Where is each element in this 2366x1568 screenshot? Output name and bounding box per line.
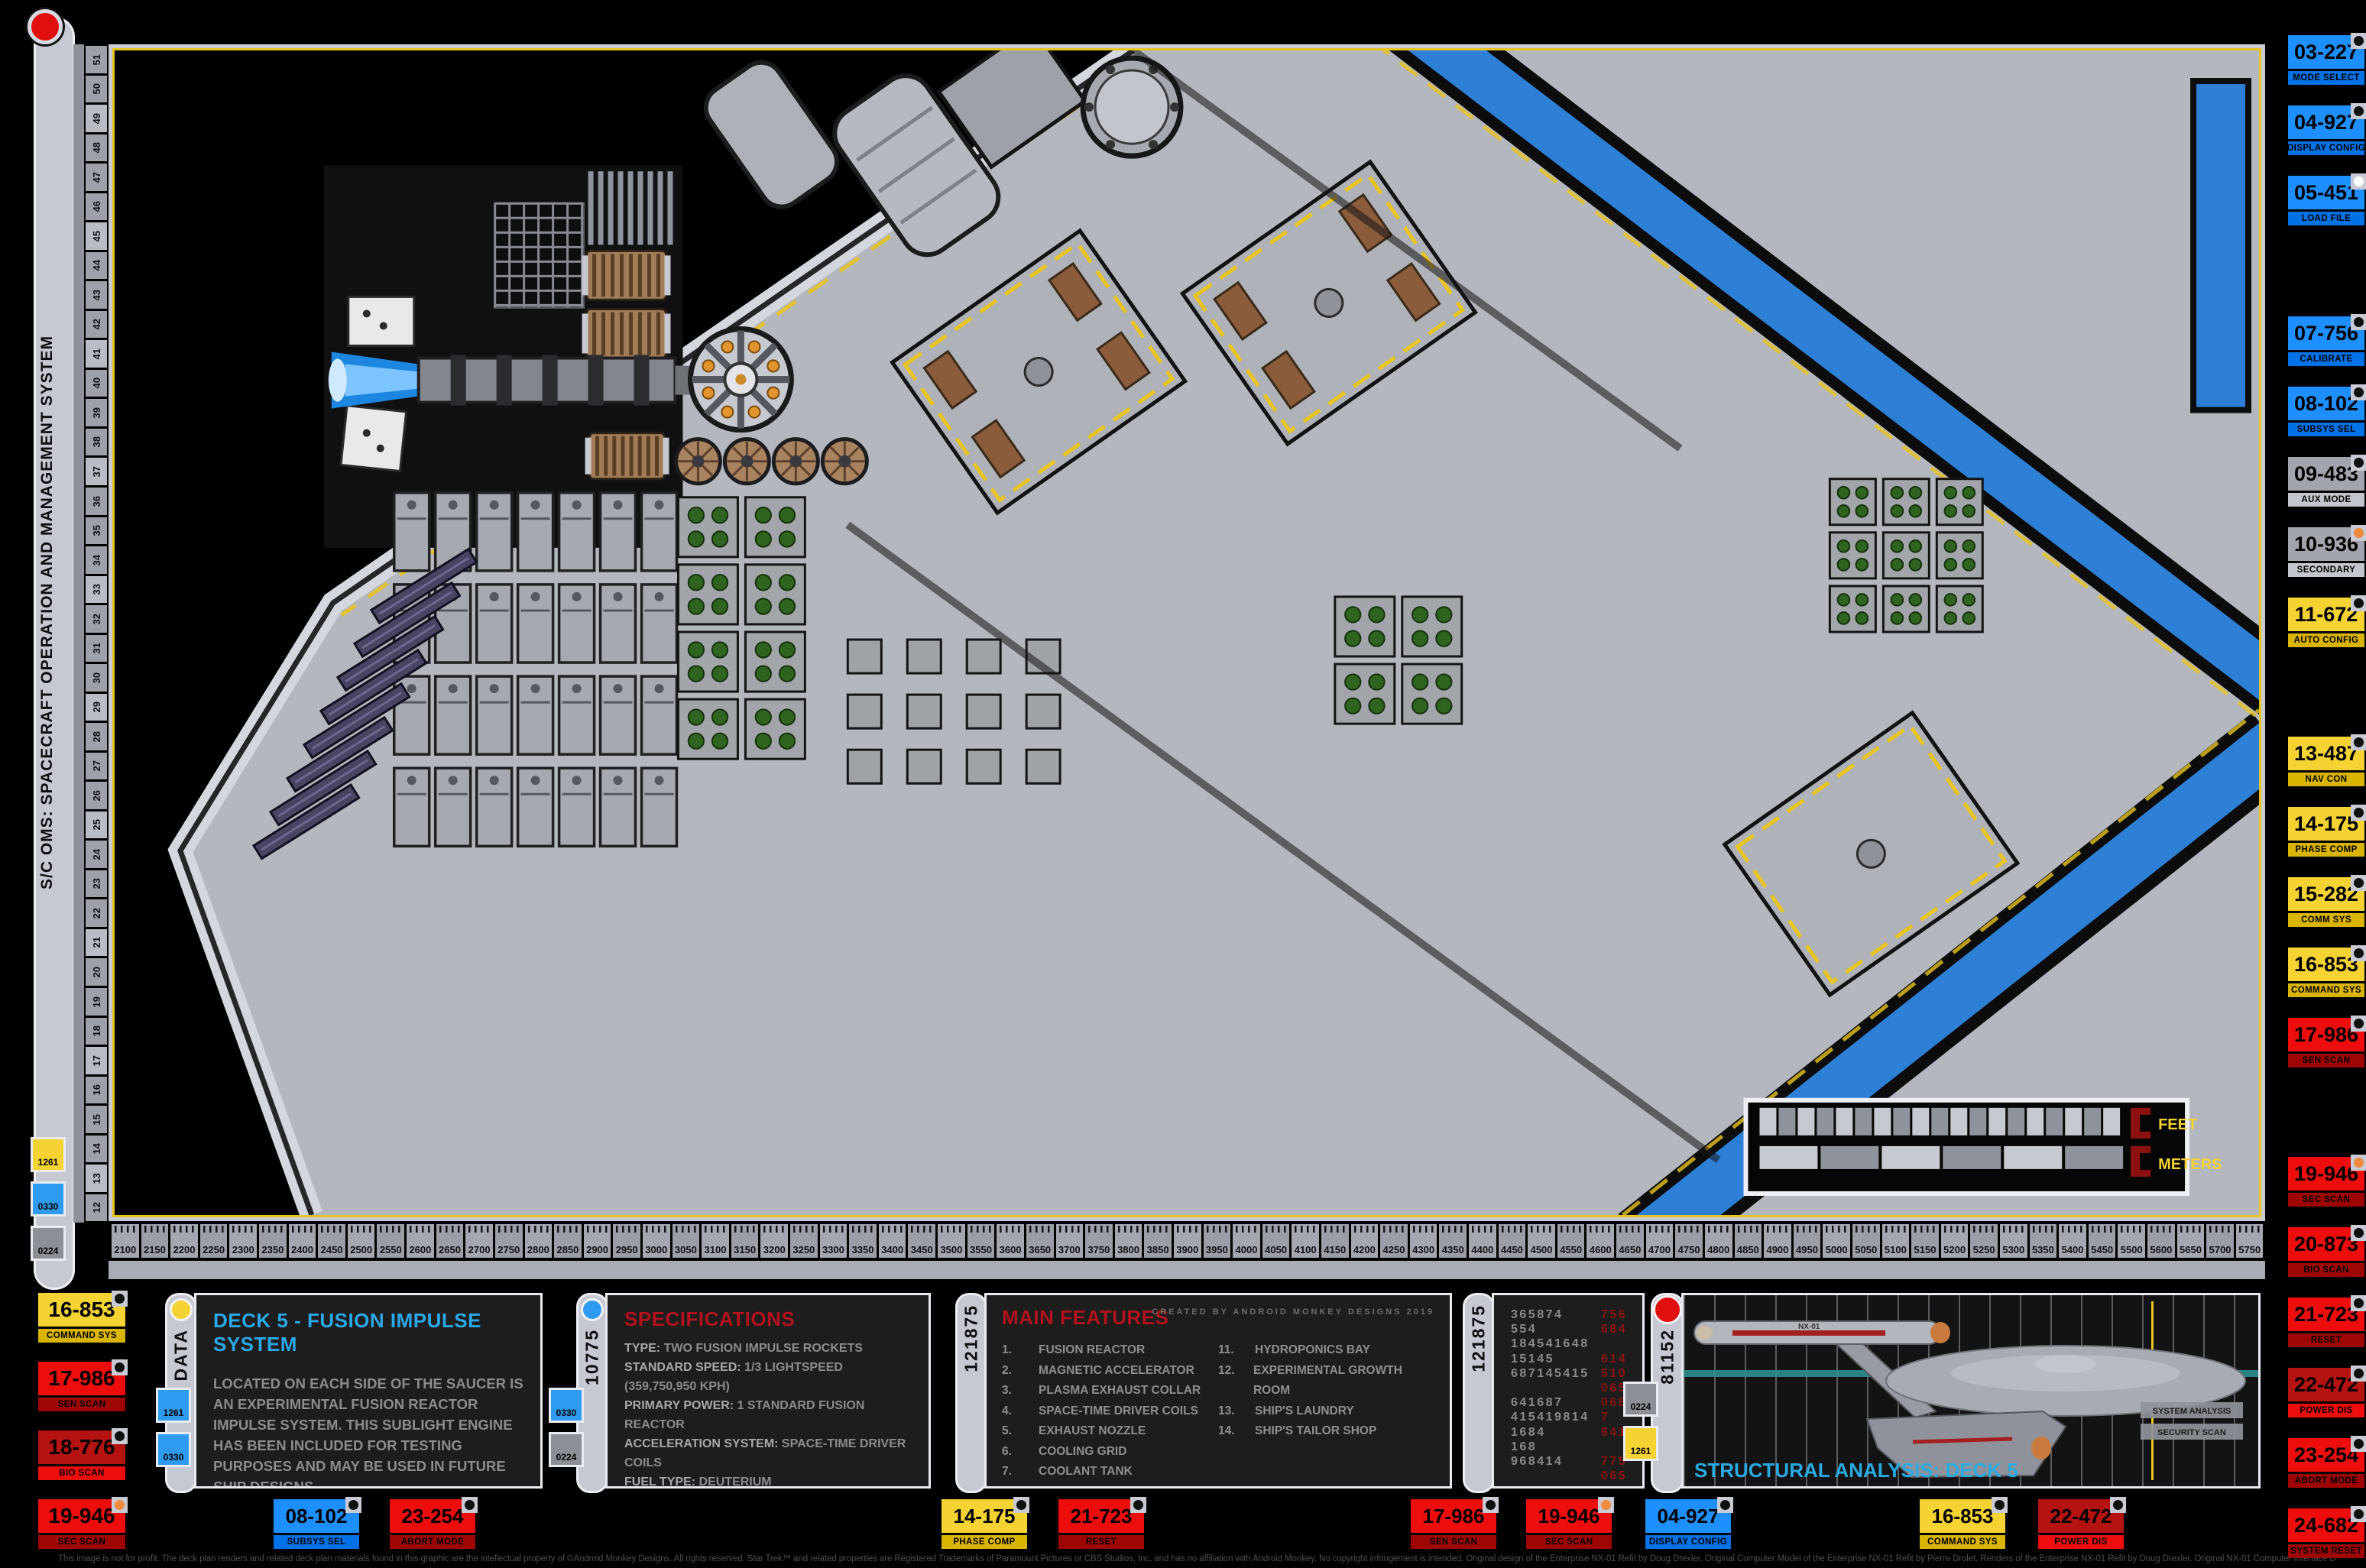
main-features-panel: CREATED BY ANDROID MONKEY DESIGNS 2019 M…	[984, 1293, 1452, 1489]
selector-chip-1261[interactable]: 1261	[156, 1388, 191, 1423]
button-code: 11-672	[2295, 603, 2358, 627]
ruler-mark-24: 24	[86, 841, 107, 868]
feature-label: FUSION REACTOR	[1039, 1340, 1145, 1361]
indicator-dot	[112, 1428, 128, 1444]
command-button-19-946[interactable]: 19-946SEC SCAN	[38, 1499, 125, 1549]
ruler-mark-label: 45	[91, 231, 102, 241]
selector-chip-0330[interactable]: 0330	[31, 1181, 66, 1216]
indicator-dot	[462, 1497, 478, 1513]
ruler-mark-21: 21	[86, 929, 107, 957]
ruler-mark-label: 22	[91, 908, 102, 918]
button-code-box: 09-483	[2288, 457, 2364, 491]
ruler-mark-label: 4600	[1587, 1244, 1614, 1255]
spec-row: TYPE: TWO FUSION IMPULSE ROCKETS	[624, 1339, 912, 1358]
command-button-08-102[interactable]: 08-102SUBSYS SEL	[274, 1499, 359, 1549]
button-function-label: LOAD FILE	[2288, 212, 2364, 225]
ruler-mark-label: 3400	[879, 1244, 906, 1255]
telemetry-value-red: 510	[1601, 1367, 1627, 1380]
ruler-mark-3300: 3300	[820, 1224, 848, 1258]
telemetry-value-red: 7	[1601, 1411, 1609, 1424]
ruler-mark-label: 3350	[849, 1244, 877, 1255]
button-code-box: 19-946	[38, 1499, 125, 1533]
button-code: 17-986	[48, 1366, 115, 1391]
ruler-mark-4900: 4900	[1764, 1224, 1791, 1258]
ruler-mark-15: 15	[86, 1106, 107, 1133]
button-code-box: 19-946	[2288, 1157, 2364, 1191]
command-button-10-936[interactable]: 10-936SECONDARY	[2288, 527, 2364, 577]
telemetry-value-gray: 687145415	[1511, 1366, 1601, 1381]
telemetry-value-gray: 15145	[1511, 1352, 1601, 1366]
ruler-mark-label: 2900	[584, 1244, 611, 1255]
ruler-mark-3350: 3350	[849, 1224, 877, 1258]
telemetry-value-gray: 168	[1511, 1440, 1601, 1454]
ruler-mark-label: 3150	[731, 1244, 759, 1255]
selector-chip-0330[interactable]: 0330	[156, 1432, 191, 1467]
structural-analysis-panel: NX-01 SYSTEM ANALYSIS SECURITY SCAN STRU…	[1681, 1293, 2261, 1489]
feature-item: 6.COOLING GRID	[1002, 1442, 1218, 1463]
ruler-mark-label: 2500	[348, 1244, 375, 1255]
analysis-tag-buttons: SYSTEM ANALYSIS SECURITY SCAN	[2141, 1402, 2243, 1440]
indicator-dot	[2351, 103, 2366, 119]
ruler-mark-13: 13	[86, 1165, 107, 1192]
indicator-dot	[2351, 595, 2366, 611]
indicator-dot	[2351, 734, 2366, 750]
ruler-mark-3750: 3750	[1085, 1224, 1113, 1258]
ruler-mark-label: 4500	[1528, 1244, 1555, 1255]
ruler-mark-label: 5750	[2236, 1244, 2264, 1255]
ruler-mark-label: 3000	[643, 1244, 670, 1255]
button-code-box: 11-672	[2288, 598, 2364, 631]
analysis-title: STRUCTURAL ANALYSIS: DECK 5	[1694, 1459, 2018, 1482]
ruler-mark-3400: 3400	[879, 1224, 906, 1258]
indicator-dot	[112, 1359, 128, 1375]
ruler-mark-label: 3300	[820, 1244, 848, 1255]
ruler-mark-32: 32	[86, 605, 107, 633]
command-button-23-254[interactable]: 23-254ABORT MODE	[390, 1499, 475, 1549]
feature-label: PLASMA EXHAUST COLLAR	[1039, 1381, 1201, 1401]
ruler-mark-label: 5150	[1911, 1244, 1939, 1255]
numbers-panel-tab: 121875	[1463, 1293, 1495, 1493]
ruler-mark-label: 15	[91, 1114, 102, 1125]
button-function-label: RESET	[1058, 1535, 1144, 1549]
ruler-mark-label: 3650	[1026, 1244, 1054, 1255]
ruler-mark-label: 33	[91, 584, 102, 594]
telemetry-row: 065	[1511, 1469, 1642, 1483]
feature-label: MAGNETIC ACCELERATOR	[1039, 1361, 1194, 1382]
ruler-mark-label: 4150	[1321, 1244, 1349, 1255]
button-function-label: COMMAND SYS	[38, 1329, 125, 1343]
button-code: 19-946	[2294, 1162, 2358, 1186]
feature-number: 5.	[1002, 1421, 1039, 1442]
ruler-mark-4600: 4600	[1587, 1224, 1614, 1258]
indicator-dot	[1992, 1497, 2008, 1513]
button-function-label: SUBSYS SEL	[274, 1535, 359, 1549]
ruler-mark-4100: 4100	[1292, 1224, 1319, 1258]
telemetry-row: 687145415510	[1511, 1366, 1642, 1381]
ruler-mark-29: 29	[86, 694, 107, 721]
ruler-mark-5650: 5650	[2177, 1224, 2205, 1258]
ruler-mark-14: 14	[86, 1136, 107, 1163]
command-button-19-946[interactable]: 19-946SEC SCAN	[2288, 1157, 2364, 1207]
ruler-mark-39: 39	[86, 399, 107, 426]
feature-number: 12.	[1218, 1361, 1253, 1401]
ruler-mark-23: 23	[86, 870, 107, 898]
command-button-19-946[interactable]: 19-946SEC SCAN	[1526, 1499, 1612, 1549]
indicator-dot	[1130, 1497, 1146, 1513]
button-function-label: COMMAND SYS	[1920, 1535, 2005, 1549]
ruler-mark-16: 16	[86, 1077, 107, 1104]
command-button-07-756[interactable]: 07-756CALIBRATE	[2288, 316, 2364, 366]
ruler-mark-4500: 4500	[1528, 1224, 1555, 1258]
button-function-label: ABORT MODE	[2288, 1474, 2364, 1488]
selector-chip-0330[interactable]: 0330	[549, 1388, 584, 1423]
ruler-mark-4150: 4150	[1321, 1224, 1349, 1258]
ruler-mark-label: 2800	[525, 1244, 553, 1255]
ruler-mark-20: 20	[86, 958, 107, 986]
command-button-17-986[interactable]: 17-986SEN SCAN	[2288, 1018, 2364, 1067]
ruler-mark-label: 5500	[2118, 1244, 2145, 1255]
telemetry-value-gray: 641687	[1511, 1395, 1601, 1410]
button-code-box: 17-986	[38, 1362, 125, 1395]
button-function-label: SEN SCAN	[1411, 1535, 1496, 1549]
button-code: 16-853	[2294, 953, 2358, 977]
button-code-box: 23-254	[390, 1499, 475, 1533]
ruler-mark-label: 5350	[2030, 1244, 2057, 1255]
button-code-box: 20-873	[2288, 1227, 2364, 1261]
analysis-panel-tab-label: 81152	[1658, 1329, 1678, 1385]
ruler-mark-label: 5700	[2206, 1244, 2234, 1255]
ruler-mark-47: 47	[86, 164, 107, 191]
button-code: 09-483	[2294, 462, 2358, 486]
ruler-mark-label: 4400	[1469, 1244, 1496, 1255]
vertical-ruler: 5150494847464544434241403938373635343332…	[86, 46, 107, 1221]
ruler-mark-label: 41	[91, 348, 102, 359]
oms-screen: S/C OMS: SPACECRAFT OPERATION AND MANAGE…	[0, 0, 2366, 1568]
telemetry-row: 365874756	[1511, 1307, 1642, 1322]
ruler-mark-label: 2100	[112, 1244, 139, 1255]
command-button-11-672[interactable]: 11-672AUTO CONFIG	[2288, 598, 2364, 647]
ruler-mark-label: 4050	[1262, 1244, 1290, 1255]
selector-chip-0224[interactable]: 0224	[1623, 1382, 1658, 1417]
button-code-box: 16-853	[1920, 1499, 2005, 1533]
command-button-05-451[interactable]: 05-451LOAD FILE	[2288, 176, 2364, 225]
security-scan-label: SECURITY SCAN	[2157, 1428, 2226, 1437]
spec-row: ACCELERATION SYSTEM: SPACE-TIME DRIVER C…	[624, 1434, 912, 1472]
ruler-mark-5300: 5300	[2000, 1224, 2027, 1258]
ruler-mark-2800: 2800	[525, 1224, 553, 1258]
ruler-mark-5700: 5700	[2206, 1224, 2234, 1258]
ruler-mark-3200: 3200	[760, 1224, 788, 1258]
button-code-box: 15-282	[2288, 877, 2364, 911]
button-code-box: 24-682	[2288, 1508, 2364, 1542]
command-button-20-873[interactable]: 20-873BIO SCAN	[2288, 1227, 2364, 1277]
ruler-mark-3150: 3150	[731, 1224, 759, 1258]
command-button-24-682[interactable]: 24-682SYSTEM RESET	[2288, 1508, 2364, 1558]
credit-text: CREATED BY ANDROID MONKEY DESIGNS 2019	[1152, 1307, 1434, 1317]
ruler-mark-2650: 2650	[436, 1224, 464, 1258]
ruler-mark-42: 42	[86, 311, 107, 339]
command-button-09-483[interactable]: 09-483AUX MODE	[2288, 457, 2364, 507]
button-function-label: SECONDARY	[2288, 563, 2364, 577]
ship-hull: NX-01	[1694, 1321, 2245, 1477]
button-code-box: 14-175	[942, 1499, 1027, 1533]
command-button-08-102[interactable]: 08-102SUBSYS SEL	[2288, 387, 2364, 436]
ruler-mark-label: 46	[91, 201, 102, 212]
button-function-label: COMMAND SYS	[2288, 983, 2364, 997]
feature-label: EXHAUST NOZZLE	[1039, 1421, 1146, 1442]
button-code: 24-682	[2294, 1514, 2358, 1537]
button-function-label: NAV CON	[2288, 773, 2364, 786]
ruler-mark-label: 29	[91, 701, 102, 712]
selector-chip-1261[interactable]: 1261	[1623, 1426, 1658, 1461]
command-button-18-776[interactable]: 18-776BIO SCAN	[38, 1430, 125, 1480]
button-function-label: SEN SCAN	[2288, 1054, 2364, 1067]
ruler-mark-3850: 3850	[1144, 1224, 1172, 1258]
ruler-mark-4000: 4000	[1233, 1224, 1260, 1258]
command-button-23-254[interactable]: 23-254ABORT MODE	[2288, 1438, 2364, 1488]
ruler-mark-label: 4700	[1646, 1244, 1674, 1255]
button-code-box: 22-472	[2288, 1368, 2364, 1401]
ruler-mark-5050: 5050	[1852, 1224, 1880, 1258]
button-code-box: 10-936	[2288, 527, 2364, 561]
ruler-mark-5600: 5600	[2147, 1224, 2175, 1258]
button-code: 04-927	[1658, 1505, 1719, 1528]
ruler-mark-label: 37	[91, 466, 102, 477]
selector-chip-0224[interactable]: 0224	[549, 1432, 584, 1467]
ruler-mark-2250: 2250	[200, 1224, 228, 1258]
button-function-label: SEC SCAN	[1526, 1535, 1612, 1549]
command-button-16-853[interactable]: 16-853COMMAND SYS	[2288, 948, 2364, 997]
ruler-mark-4050: 4050	[1262, 1224, 1290, 1258]
data-panel: DECK 5 - FUSION IMPULSE SYSTEM LOCATED O…	[194, 1293, 543, 1489]
ruler-mark-label: 39	[91, 407, 102, 418]
button-function-label: POWER DIS	[2288, 1404, 2364, 1417]
ruler-mark-label: 36	[91, 496, 102, 507]
button-function-label: RESET	[2288, 1333, 2364, 1347]
ruler-mark-label: 4650	[1616, 1244, 1644, 1255]
feature-number: 6.	[1002, 1442, 1039, 1463]
ruler-mark-46: 46	[86, 193, 107, 221]
ruler-mark-label: 2250	[200, 1244, 228, 1255]
button-function-label: DISPLAY CONFIG	[2288, 141, 2364, 155]
ruler-mark-2600: 2600	[407, 1224, 434, 1258]
telemetry-value-red: 065	[1601, 1469, 1627, 1482]
ruler-mark-label: 24	[91, 849, 102, 860]
ruler-mark-label: 27	[91, 760, 102, 771]
ruler-mark-label: 35	[91, 525, 102, 536]
ruler-mark-label: 2950	[613, 1244, 640, 1255]
indicator-dot	[2351, 173, 2366, 190]
ruler-mark-3650: 3650	[1026, 1224, 1054, 1258]
ruler-mark-4450: 4450	[1499, 1224, 1526, 1258]
button-code-box: 19-946	[1526, 1499, 1612, 1533]
ruler-mark-label: 4900	[1764, 1244, 1791, 1255]
button-code: 04-927	[2294, 111, 2358, 134]
ruler-mark-label: 19	[91, 996, 102, 1007]
fusion-reactor	[690, 329, 791, 429]
ruler-mark-5450: 5450	[2089, 1224, 2116, 1258]
feature-label: RCS THRUSTERS	[1039, 1482, 1139, 1489]
ruler-mark-43: 43	[86, 281, 107, 309]
ruler-mark-label: 5200	[1941, 1244, 1969, 1255]
ruler-mark-36: 36	[86, 488, 107, 515]
feature-number: 7.	[1002, 1462, 1039, 1482]
command-button-22-472[interactable]: 22-472POWER DIS	[2288, 1368, 2364, 1417]
command-button-17-986[interactable]: 17-986SEN SCAN	[38, 1362, 125, 1411]
button-function-label: AUX MODE	[2288, 493, 2364, 507]
button-code-box: 16-853	[2288, 948, 2364, 981]
numbers-panel-tab-label: 121875	[1469, 1304, 1489, 1372]
command-button-17-986[interactable]: 17-986SEN SCAN	[1411, 1499, 1496, 1549]
ruler-mark-2950: 2950	[613, 1224, 640, 1258]
selector-chip-1261[interactable]: 1261	[31, 1137, 66, 1172]
ruler-mark-5200: 5200	[1941, 1224, 1969, 1258]
feature-number: 4.	[1002, 1401, 1039, 1422]
telemetry-value-red: 614	[1601, 1353, 1627, 1366]
ruler-mark-25: 25	[86, 812, 107, 839]
command-button-16-853[interactable]: 16-853COMMAND SYS	[38, 1293, 125, 1343]
ruler-mark-19: 19	[86, 988, 107, 1016]
command-button-03-227[interactable]: 03-227MODE SELECT	[2288, 35, 2364, 85]
button-code: 21-723	[2294, 1303, 2358, 1327]
command-button-21-723[interactable]: 21-723RESET	[2288, 1297, 2364, 1347]
button-function-label: SYSTEM RESET	[2288, 1544, 2364, 1558]
command-button-04-927[interactable]: 04-927DISPLAY CONFIG	[2288, 105, 2364, 155]
ruler-mark-label: 32	[91, 614, 102, 624]
feature-label: SPACE-TIME DRIVER COILS	[1039, 1401, 1198, 1422]
command-button-16-853[interactable]: 16-853COMMAND SYS	[1920, 1499, 2005, 1549]
command-button-22-472[interactable]: 22-472POWER DIS	[2038, 1499, 2124, 1549]
ruler-mark-3900: 3900	[1174, 1224, 1201, 1258]
command-button-21-723[interactable]: 21-723RESET	[1058, 1499, 1144, 1549]
ruler-mark-label: 43	[91, 290, 102, 300]
command-button-14-175[interactable]: 14-175PHASE COMP	[942, 1499, 1027, 1549]
button-function-label: AUTO CONFIG	[2288, 633, 2364, 647]
ruler-mark-4850: 4850	[1735, 1224, 1762, 1258]
button-code: 17-986	[2294, 1023, 2358, 1047]
system-title: S/C OMS: SPACECRAFT OPERATION AND MANAGE…	[38, 49, 57, 889]
button-code: 17-986	[1423, 1505, 1485, 1528]
ruler-mark-12: 12	[86, 1194, 107, 1222]
button-code: 08-102	[2294, 392, 2358, 416]
ruler-mark-label: 4450	[1499, 1244, 1526, 1255]
feature-number: 1.	[1002, 1340, 1039, 1361]
button-code: 22-472	[2294, 1373, 2358, 1397]
command-button-13-487[interactable]: 13-487NAV CON	[2288, 737, 2364, 786]
button-function-label: SEC SCAN	[38, 1535, 125, 1549]
button-code: 16-853	[48, 1297, 115, 1322]
ruler-mark-label: 3750	[1085, 1244, 1113, 1255]
ruler-mark-28: 28	[86, 723, 107, 750]
meters-label: METERS	[2158, 1156, 2222, 1173]
command-button-04-927[interactable]: 04-927DISPLAY CONFIG	[1645, 1499, 1731, 1549]
ruler-mark-4650: 4650	[1616, 1224, 1644, 1258]
deck-title: DECK 5 - FUSION IMPULSE SYSTEM	[213, 1309, 523, 1356]
button-function-label: BIO SCAN	[2288, 1263, 2364, 1277]
ruler-mark-5400: 5400	[2059, 1224, 2086, 1258]
ruler-mark-label: 2700	[465, 1244, 493, 1255]
ruler-mark-label: 3700	[1056, 1244, 1084, 1255]
ruler-mark-31: 31	[86, 635, 107, 663]
indicator-dot	[112, 1497, 128, 1513]
features-panel-tab: 121875	[955, 1293, 987, 1493]
telemetry-value-gray: 1684	[1511, 1425, 1601, 1440]
telemetry-value-gray: 365874	[1511, 1307, 1601, 1322]
ruler-mark-17: 17	[86, 1047, 107, 1074]
button-function-label: MODE SELECT	[2288, 71, 2364, 85]
ruler-mark-label: 14	[91, 1143, 102, 1154]
ruler-mark-label: 2650	[436, 1244, 464, 1255]
button-code: 23-254	[2294, 1443, 2358, 1467]
button-function-label: SEN SCAN	[38, 1398, 125, 1411]
ruler-mark-41: 41	[86, 340, 107, 368]
ruler-mark-label: 5050	[1852, 1244, 1880, 1255]
ruler-mark-2150: 2150	[141, 1224, 169, 1258]
command-button-15-282[interactable]: 15-282COMM SYS	[2288, 877, 2364, 927]
ruler-mark-4550: 4550	[1557, 1224, 1585, 1258]
indicator-dot	[2351, 1225, 2366, 1241]
ruler-mark-3250: 3250	[790, 1224, 818, 1258]
indicator-dot	[1717, 1497, 1733, 1513]
ruler-mark-label: 13	[91, 1173, 102, 1184]
indicator-dot	[2110, 1497, 2126, 1513]
feature-item: 5.EXHAUST NOZZLE	[1002, 1421, 1218, 1442]
ruler-mark-3800: 3800	[1115, 1224, 1142, 1258]
button-code: 23-254	[402, 1505, 464, 1528]
copyright-footer: This image is not for profit. The deck p…	[58, 1554, 2335, 1563]
feature-number: 11.	[1218, 1340, 1255, 1361]
indicator-dot	[1013, 1497, 1029, 1513]
button-code: 05-451	[2294, 181, 2358, 205]
selector-chip-0224[interactable]: 0224	[31, 1226, 66, 1261]
deck-description: LOCATED ON EACH SIDE OF THE SAUCER IS AN…	[213, 1373, 523, 1489]
ruler-mark-50: 50	[86, 76, 107, 103]
ruler-mark-3500: 3500	[938, 1224, 965, 1258]
button-function-label: POWER DIS	[2038, 1535, 2124, 1549]
button-code-box: 23-254	[2288, 1438, 2364, 1472]
button-code-box: 08-102	[2288, 387, 2364, 420]
panel-status-icon	[1653, 1295, 1682, 1324]
alert-indicator-icon	[28, 9, 63, 44]
telemetry-numbers-panel: 3658747565546841845416481514561468714541…	[1492, 1293, 1645, 1489]
ruler-mark-3450: 3450	[908, 1224, 935, 1258]
ruler-mark-label: 2750	[495, 1244, 523, 1255]
telemetry-value-gray: 184541648	[1511, 1336, 1601, 1351]
ruler-mark-2750: 2750	[495, 1224, 523, 1258]
deck-plan-viewport[interactable]: FEET METERS	[112, 48, 2261, 1217]
command-button-14-175[interactable]: 14-175PHASE COMP	[2288, 807, 2364, 857]
ruler-mark-27: 27	[86, 753, 107, 780]
ruler-mark-label: 20	[91, 967, 102, 977]
indicator-dot	[1598, 1497, 1614, 1513]
feature-item: 12.EXPERIMENTAL GROWTH ROOM	[1218, 1361, 1434, 1401]
button-code: 19-946	[48, 1504, 115, 1528]
ruler-mark-label: 38	[91, 436, 102, 447]
indicator-dot	[2351, 945, 2366, 961]
ruler-mark-label: 17	[91, 1055, 102, 1066]
ruler-mark-4300: 4300	[1410, 1224, 1437, 1258]
ruler-mark-4400: 4400	[1469, 1224, 1496, 1258]
button-function-label: BIO SCAN	[38, 1466, 125, 1480]
feature-item: 13.SHIP'S LAUNDRY	[1218, 1401, 1434, 1422]
button-function-label: ABORT MODE	[390, 1535, 475, 1549]
ruler-mark-label: 23	[91, 878, 102, 889]
button-code-box: 16-853	[38, 1293, 125, 1327]
feature-number: 13.	[1218, 1401, 1255, 1422]
button-function-label: DISPLAY CONFIG	[1645, 1535, 1731, 1549]
indicator-dot	[2351, 1436, 2366, 1452]
feature-item: 2.MAGNETIC ACCELERATOR	[1002, 1361, 1218, 1382]
